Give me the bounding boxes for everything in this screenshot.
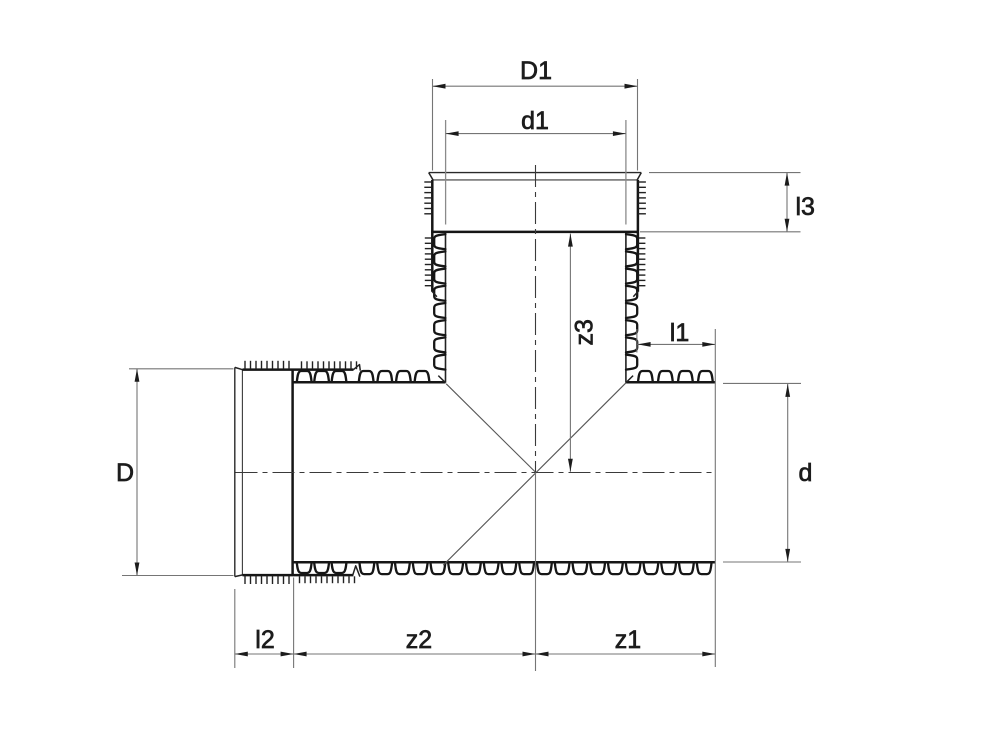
svg-text:l3: l3	[796, 193, 815, 221]
svg-text:l2: l2	[255, 626, 274, 654]
svg-text:z3: z3	[571, 319, 599, 345]
svg-text:l1: l1	[670, 319, 689, 347]
svg-text:d: d	[799, 459, 813, 487]
svg-text:z2: z2	[406, 626, 432, 654]
svg-text:z1: z1	[615, 626, 641, 654]
svg-text:D: D	[116, 459, 134, 487]
svg-text:D1: D1	[520, 57, 552, 85]
svg-text:d1: d1	[521, 107, 549, 135]
